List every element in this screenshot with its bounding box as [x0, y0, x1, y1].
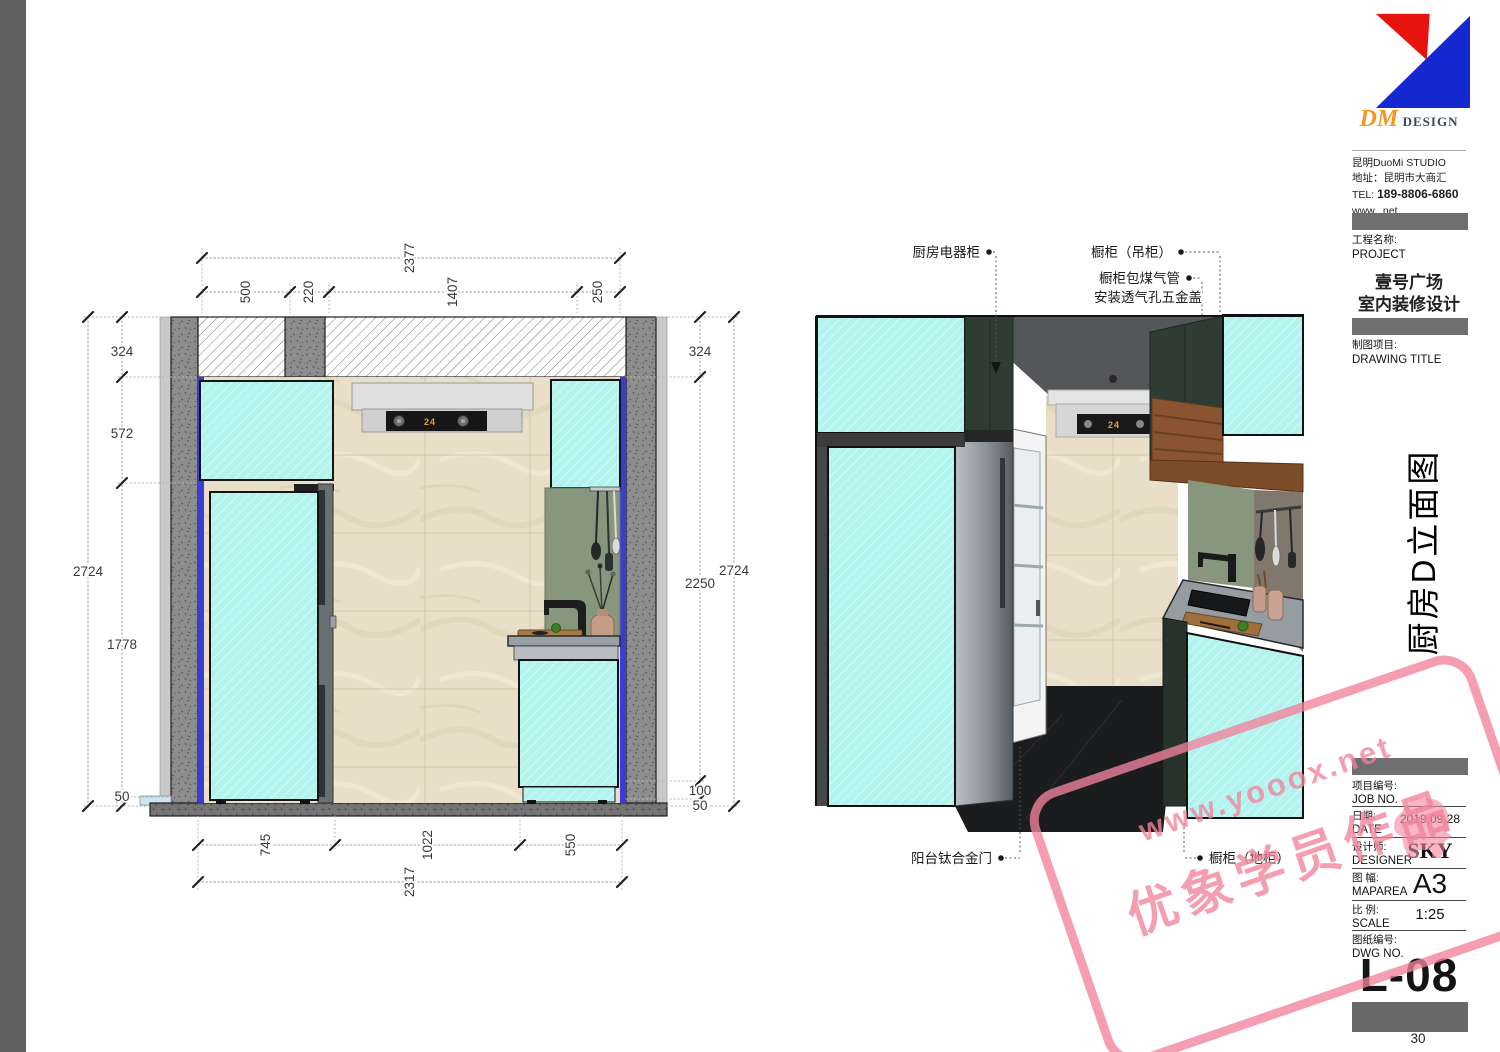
dim-top-1407: 1407 [445, 277, 460, 307]
title-block: DM DESIGN 昆明DuoMi STUDIO 地址：昆明市大商汇 TEL: … [1348, 0, 1470, 1052]
drawing-label-en: DRAWING TITLE [1352, 353, 1441, 367]
size-label-cn: 图 幅: [1352, 872, 1379, 885]
appliance-cabinet [965, 316, 1013, 440]
section-bar [1352, 318, 1468, 335]
balcony-door [1008, 428, 1046, 744]
company-info: 昆明DuoMi STUDIO 地址：昆明市大商汇 TEL: 189-8806-6… [1352, 156, 1459, 219]
kitchen-perspective-view: 24 [810, 235, 1320, 900]
jar-small [1253, 586, 1266, 612]
hood-clock-display: 24 [424, 417, 436, 427]
dim-bottom-745: 745 [258, 834, 273, 857]
tall-cabinet-fridge [210, 484, 336, 804]
divider [1352, 900, 1466, 901]
range-hood: 24 [352, 383, 533, 432]
page-edge-strip [0, 0, 26, 1052]
studio-name: 昆明DuoMi STUDIO [1352, 156, 1459, 171]
dim-right-50: 50 [692, 798, 707, 813]
perspective-backsplash-green [1188, 480, 1254, 588]
base-cabinet [519, 660, 618, 787]
logo-red-triangle [1376, 14, 1430, 60]
dim-left-overall: 2724 [73, 564, 104, 579]
date-label-en: DATE [1352, 823, 1382, 837]
dim-right-100: 100 [689, 783, 712, 798]
designer-value: SKY [1392, 838, 1468, 864]
dim-bottom-550: 550 [563, 834, 578, 857]
dim-left-572: 572 [111, 426, 134, 441]
fridge-front-highlight [210, 492, 318, 800]
cutting-board [518, 630, 582, 636]
dim-right-324: 324 [689, 344, 712, 359]
divider [1352, 930, 1466, 931]
jar-large [1268, 590, 1283, 620]
studio-address: 地址：昆明市大商汇 [1352, 171, 1459, 186]
page-number: 30 [1358, 1031, 1478, 1046]
kitchen-elevation-drawing: 24 [40, 220, 780, 920]
section-bar [1352, 213, 1468, 230]
dim-top-250: 250 [590, 281, 605, 304]
countertop [508, 636, 620, 646]
dim-bottom-1022: 1022 [420, 830, 435, 860]
callout-wall-cabinet: 橱柜（吊柜） [1091, 245, 1172, 260]
logo-design-text: DESIGN [1403, 114, 1459, 129]
logo-dm-text: DM [1360, 106, 1399, 132]
date-label-cn: 日期: [1352, 810, 1376, 823]
scale-value: 1:25 [1392, 906, 1468, 923]
callout-appliance-cabinet: 厨房电器柜 [913, 245, 981, 260]
section-bar [1352, 758, 1468, 775]
scale-label-cn: 比 例: [1352, 904, 1379, 917]
perspective-fridge [955, 395, 1013, 806]
door-handle [1036, 600, 1040, 616]
base-cabinet-side [1163, 618, 1187, 806]
dim-top-overall: 2377 [402, 243, 417, 273]
date-value: 2019,09,28 [1392, 812, 1468, 826]
drawing-sheet: 24 [0, 0, 1500, 1052]
studio-tel: TEL: 189-8806-6860 [1352, 186, 1459, 203]
callout-base-cabinet: 橱柜（地柜） [1209, 851, 1290, 866]
wall-cabinet-left [200, 381, 333, 480]
perspective-room: 24 [816, 315, 1303, 832]
project-name-line2: 室内装修设计 [1348, 290, 1470, 315]
wood-shelf-cabinet [1152, 398, 1223, 466]
size-value: A3 [1392, 868, 1468, 900]
perspective-counter [1163, 552, 1303, 818]
hood-clock-display-perspective: 24 [1108, 420, 1120, 430]
dim-top-500: 500 [238, 281, 253, 304]
concrete-pier [285, 317, 325, 377]
sheet-number: L-08 [1348, 948, 1470, 1002]
project-label-cn: 工程名称: [1352, 234, 1397, 247]
wall-cabinet-top-right [1223, 315, 1303, 435]
dim-left-50: 50 [114, 789, 129, 804]
wall-cabinet-top-left [817, 317, 965, 433]
tall-cabinet-front [828, 447, 955, 806]
designer-label-cn: 设计师: [1352, 841, 1386, 854]
right-wall-section [626, 317, 656, 806]
drawing-title-vertical: 厨房D立面图 [1405, 447, 1443, 657]
dim-left-324: 324 [111, 344, 134, 359]
dim-bottom-overall: 2317 [402, 867, 417, 897]
fridge-handle [330, 616, 336, 628]
divider [1352, 806, 1466, 807]
callout-gas-pipe-line1: 橱柜包煤气管 [1099, 271, 1180, 286]
drawing-label-cn: 制图项目: [1352, 339, 1397, 352]
left-wall-section [171, 317, 198, 806]
dim-left-1778: 1778 [107, 637, 137, 652]
logo-wordmark: DM DESIGN [1348, 106, 1470, 133]
callout-balcony-door: 阳台钛合金门 [911, 851, 992, 866]
dm-logo [1374, 12, 1470, 108]
project-label-en: PROJECT [1352, 248, 1406, 262]
section-bar [1352, 1002, 1468, 1032]
divider [1352, 150, 1466, 151]
base-cabinet-highlight [1187, 633, 1303, 818]
floor-slab [150, 803, 667, 816]
ceiling-light [1109, 375, 1117, 383]
dim-right-overall: 2724 [719, 563, 750, 578]
callout-gas-pipe-line2: 安装透气孔五金盖 [1094, 290, 1202, 305]
wall-cabinet-right [551, 380, 620, 488]
dwg-label-cn: 图纸编号: [1352, 934, 1397, 947]
ceiling-hatch-band [198, 317, 626, 377]
job-label-cn: 项目编号: [1352, 780, 1397, 793]
dim-top-220: 220 [301, 281, 316, 304]
dim-right-2250: 2250 [685, 576, 715, 591]
